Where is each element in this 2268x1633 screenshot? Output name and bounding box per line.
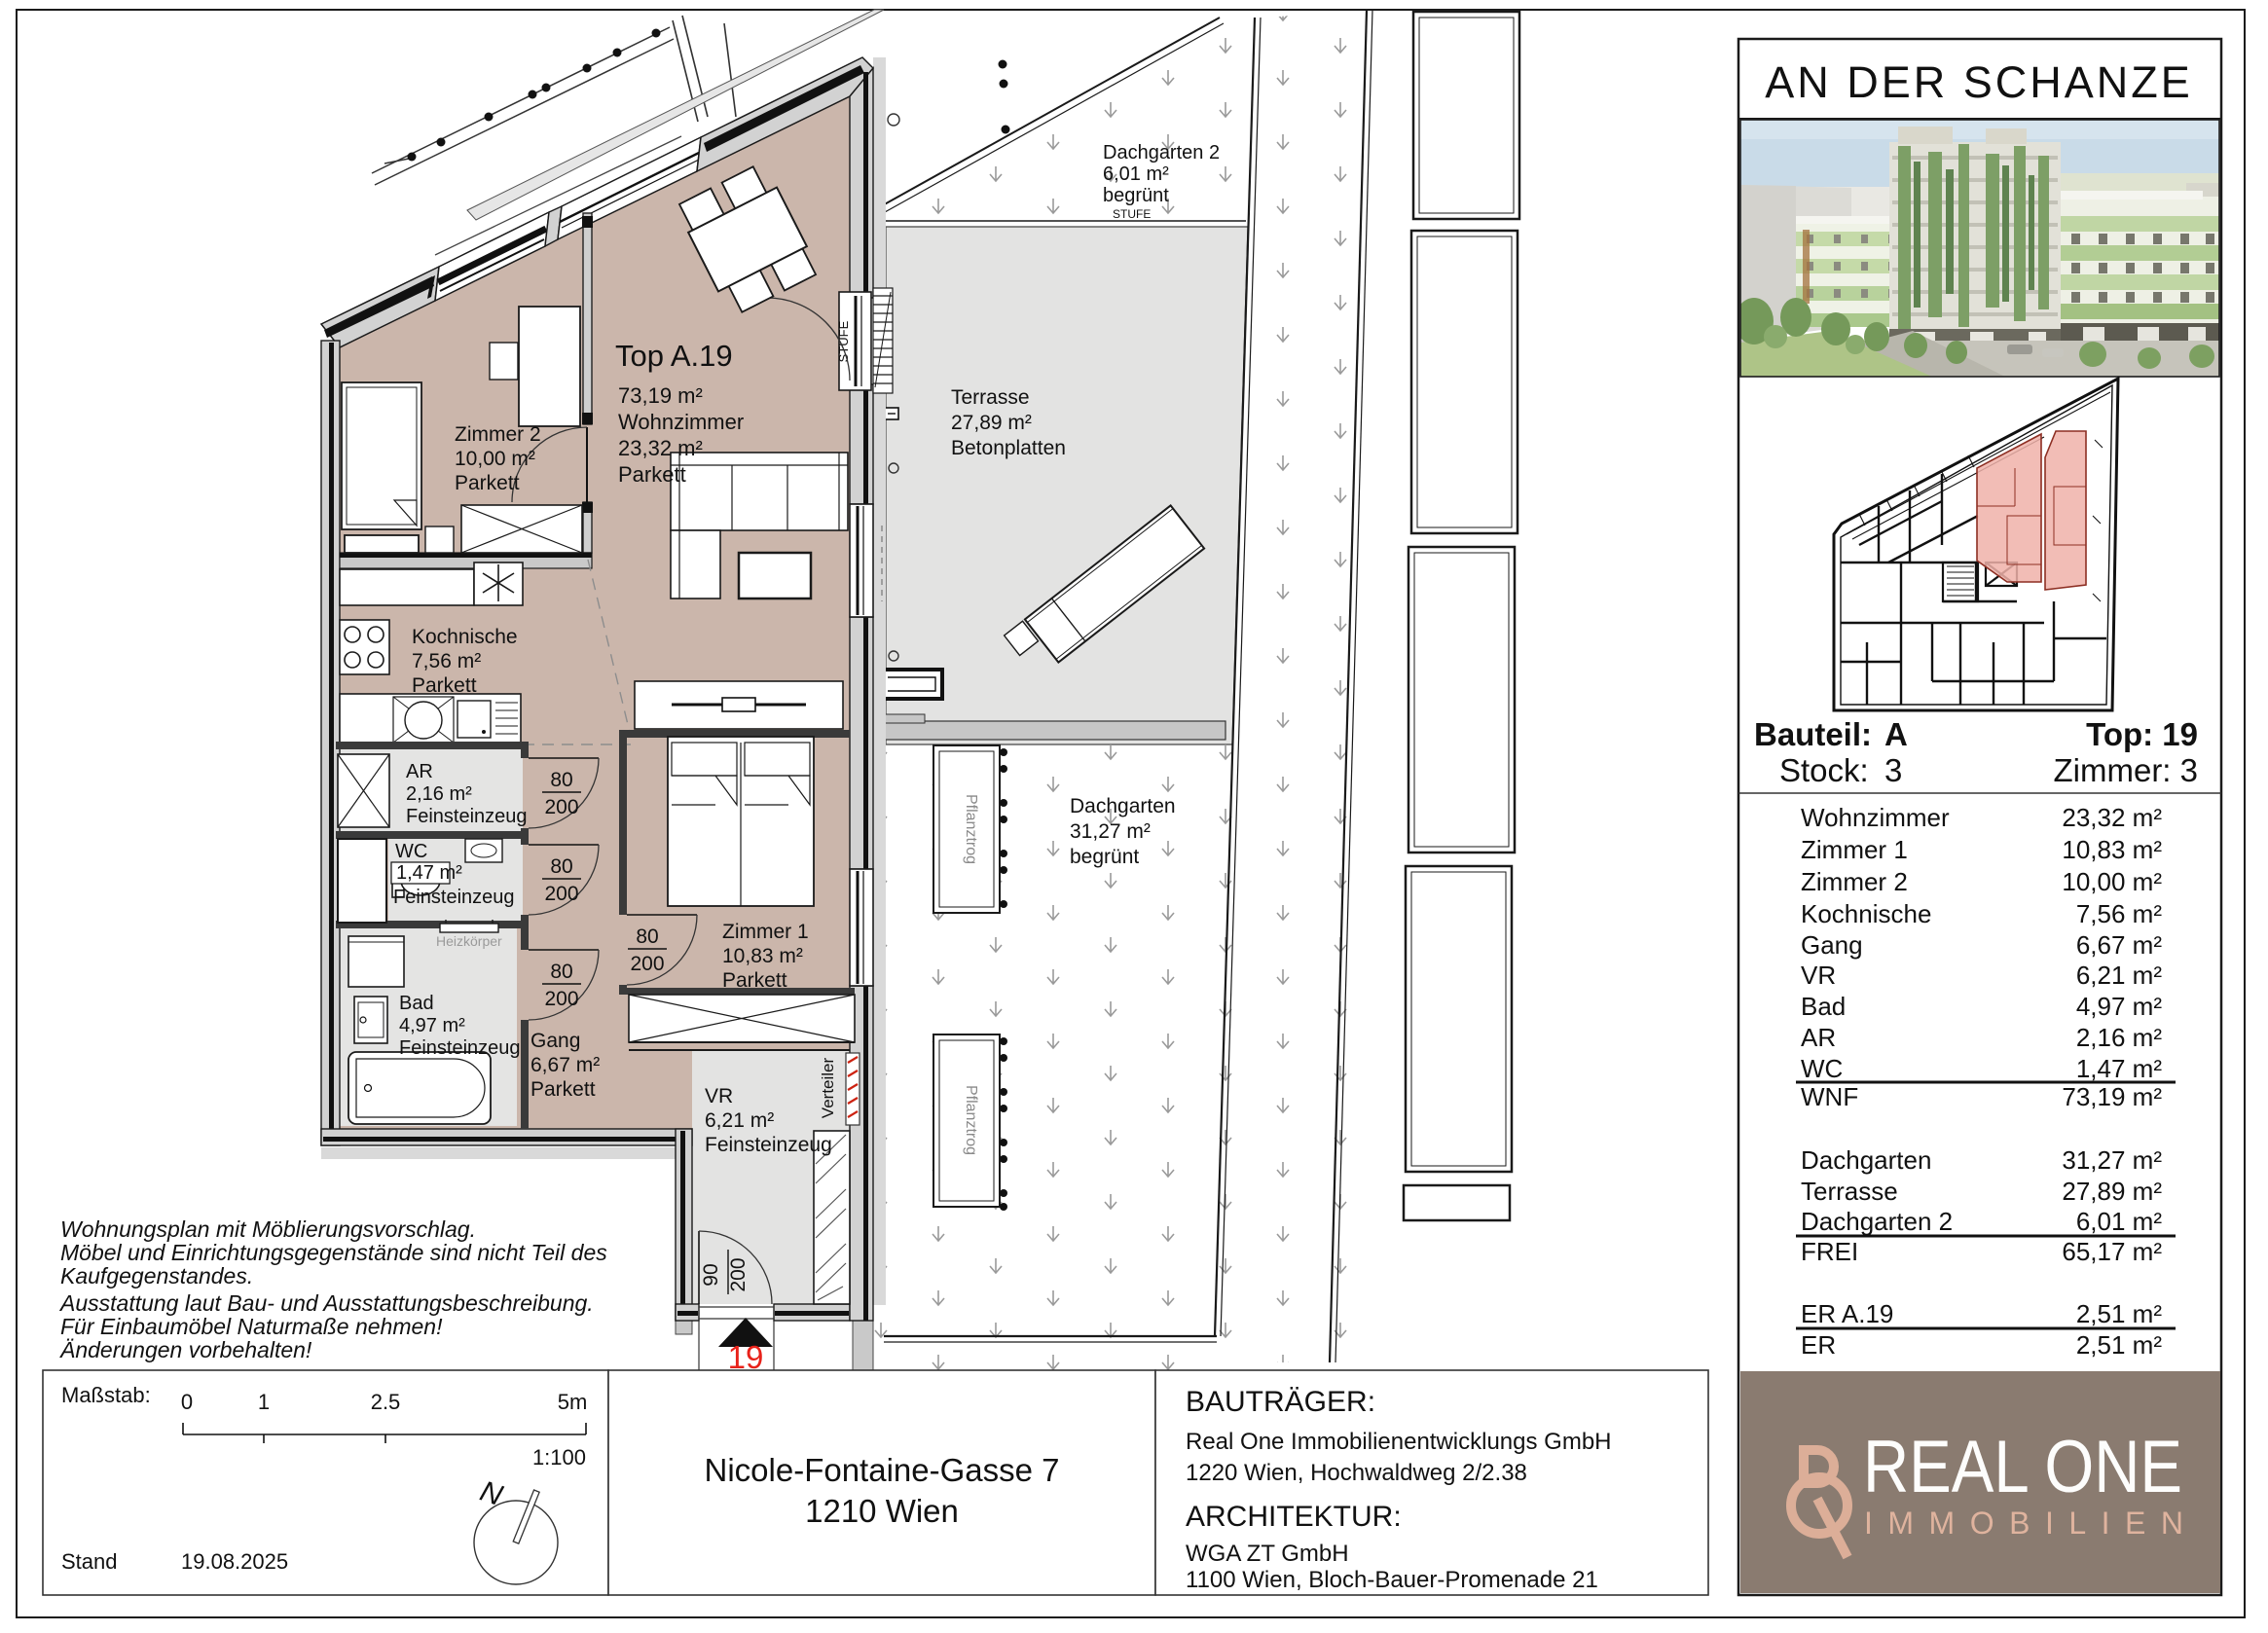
svg-text:WC: WC [395,841,427,862]
svg-text:5m: 5m [558,1390,588,1414]
svg-text:Kochnische: Kochnische [412,626,518,648]
svg-text:200: 200 [544,988,578,1010]
svg-text:Bauteil:: Bauteil: [1754,716,1872,752]
svg-text:1: 1 [258,1390,270,1414]
svg-text:Gang: Gang [530,1030,580,1052]
svg-text:Wohnungsplan mit Möblierungsvo: Wohnungsplan mit Möblierungsvorschlag. [60,1216,476,1242]
svg-text:1220 Wien, Hochwaldweg 2/2.38: 1220 Wien, Hochwaldweg 2/2.38 [1186,1460,1527,1486]
svg-text:AR: AR [406,761,433,782]
svg-text:200: 200 [544,883,578,905]
svg-text:Maßstab:: Maßstab: [61,1383,151,1407]
svg-text:Parkett: Parkett [722,969,787,992]
svg-text:3: 3 [1884,752,1902,788]
svg-text:Wohnzimmer: Wohnzimmer [1801,803,1950,832]
svg-text:1,47 m²: 1,47 m² [2076,1054,2162,1083]
svg-text:27,89 m²: 27,89 m² [2062,1177,2162,1206]
svg-text:65,17 m²: 65,17 m² [2062,1237,2162,1266]
svg-text:19.08.2025: 19.08.2025 [181,1549,288,1574]
svg-text:REAL ONE: REAL ONE [1863,1426,2182,1508]
svg-text:FREI: FREI [1801,1237,1858,1266]
svg-text:Top A.19: Top A.19 [615,339,733,373]
svg-text:6,67 m²: 6,67 m² [2076,930,2162,960]
svg-text:Zimmer 2: Zimmer 2 [455,423,541,446]
svg-text:31,27 m²: 31,27 m² [2062,1145,2162,1175]
svg-text:VR: VR [705,1085,733,1107]
svg-text:31,27 m²: 31,27 m² [1070,820,1151,843]
svg-text:Zimmer: 3: Zimmer: 3 [2054,752,2199,788]
svg-text:2.5: 2.5 [371,1390,401,1414]
svg-text:Stand: Stand [61,1549,118,1574]
svg-text:1:100: 1:100 [532,1445,586,1470]
svg-text:10,83 m²: 10,83 m² [722,945,803,967]
svg-text:Kochnische: Kochnische [1801,899,1931,928]
svg-text:Dachgarten 2: Dachgarten 2 [1103,142,1220,163]
svg-text:Bad: Bad [399,993,434,1014]
svg-text:73,19 m²: 73,19 m² [618,383,703,408]
svg-text:Bad: Bad [1801,992,1846,1021]
svg-text:IMMOBILIEN: IMMOBILIEN [1864,1506,2198,1541]
svg-text:A: A [1884,716,1908,752]
svg-text:begrünt: begrünt [1070,846,1139,868]
svg-text:ER: ER [1801,1330,1836,1360]
svg-text:WGA ZT GmbH: WGA ZT GmbH [1186,1541,1349,1567]
svg-text:10,00 m²: 10,00 m² [455,448,535,470]
svg-text:0: 0 [181,1390,193,1414]
svg-text:Parkett: Parkett [412,674,477,697]
svg-text:Kaufgegenstandes.: Kaufgegenstandes. [60,1263,253,1288]
svg-text:Wohnzimmer: Wohnzimmer [618,410,744,434]
svg-text:ARCHITEKTUR:: ARCHITEKTUR: [1186,1501,1402,1533]
svg-text:2,16 m²: 2,16 m² [406,783,472,805]
svg-text:Parkett: Parkett [455,472,520,494]
svg-text:Für Einbaumöbel Naturmaße nehm: Für Einbaumöbel Naturmaße nehmen! [60,1314,443,1339]
svg-text:ER A.19: ER A.19 [1801,1299,1893,1328]
svg-text:23,32 m²: 23,32 m² [618,436,703,460]
svg-text:Dachgarten: Dachgarten [1801,1145,1931,1175]
svg-text:4,97 m²: 4,97 m² [2076,992,2162,1021]
svg-text:Dachgarten 2: Dachgarten 2 [1801,1207,1953,1236]
svg-text:2,51 m²: 2,51 m² [2076,1330,2162,1360]
svg-text:Heizkörper: Heizkörper [436,933,502,949]
svg-text:VR: VR [1801,961,1836,990]
svg-text:WNF: WNF [1801,1082,1858,1111]
svg-text:Pflanztrog: Pflanztrog [963,1085,979,1155]
svg-text:Ausstattung laut Bau- und Auss: Ausstattung laut Bau- und Ausstattungsbe… [58,1290,594,1316]
svg-text:AN DER SCHANZE: AN DER SCHANZE [1765,57,2193,107]
svg-text:Zimmer 1: Zimmer 1 [722,921,809,943]
svg-text:1,47 m²: 1,47 m² [396,862,462,884]
svg-text:Zimmer 2: Zimmer 2 [1801,867,1908,896]
svg-text:1210 Wien: 1210 Wien [805,1493,959,1529]
svg-text:Nicole-Fontaine-Gasse 7: Nicole-Fontaine-Gasse 7 [705,1452,1060,1488]
svg-text:1100 Wien, Bloch-Bauer-Promena: 1100 Wien, Bloch-Bauer-Promenade 21 [1186,1567,1598,1593]
svg-text:6,01 m²: 6,01 m² [2076,1207,2162,1236]
svg-text:7,56 m²: 7,56 m² [2076,899,2162,928]
svg-text:27,89 m²: 27,89 m² [951,412,1032,434]
svg-text:Stock:: Stock: [1779,752,1869,788]
svg-text:Pflanztrog: Pflanztrog [963,794,979,864]
svg-text:Änderungen vorbehalten!: Änderungen vorbehalten! [59,1337,312,1362]
svg-text:Betonplatten: Betonplatten [951,437,1066,459]
svg-text:BAUTRÄGER:: BAUTRÄGER: [1186,1386,1375,1418]
svg-text:Gang: Gang [1801,930,1863,960]
svg-text:90: 90 [700,1263,722,1286]
svg-text:6,21 m²: 6,21 m² [2076,961,2162,990]
svg-text:Zimmer 1: Zimmer 1 [1801,835,1908,864]
svg-text:Parkett: Parkett [618,462,686,487]
svg-text:200: 200 [544,796,578,818]
svg-text:Feinsteinzeug: Feinsteinzeug [705,1134,832,1156]
svg-text:4,97 m²: 4,97 m² [399,1015,465,1036]
svg-text:73,19 m²: 73,19 m² [2062,1082,2162,1111]
svg-text:Verteiler: Verteiler [819,1057,837,1118]
svg-text:6,01 m²: 6,01 m² [1103,163,1169,185]
svg-text:Real One Immobilienentwicklung: Real One Immobilienentwicklungs GmbH [1186,1429,1612,1455]
svg-text:2,51 m²: 2,51 m² [2076,1299,2162,1328]
svg-text:Feinsteinzeug: Feinsteinzeug [399,1037,521,1059]
svg-text:Top: 19: Top: 19 [2086,716,2198,752]
svg-text:80: 80 [550,855,572,878]
svg-text:10,83 m²: 10,83 m² [2062,835,2162,864]
svg-text:Parkett: Parkett [530,1078,596,1101]
svg-text:WC: WC [1801,1054,1843,1083]
svg-text:Dachgarten: Dachgarten [1070,795,1176,817]
svg-text:6,21 m²: 6,21 m² [705,1109,774,1132]
svg-text:Terrasse: Terrasse [951,386,1030,409]
svg-text:Feinsteinzeug: Feinsteinzeug [406,806,528,827]
svg-text:23,32 m²: 23,32 m² [2062,803,2162,832]
svg-text:AR: AR [1801,1023,1836,1052]
svg-text:Feinsteinzeug: Feinsteinzeug [393,887,515,908]
svg-text:80: 80 [550,769,572,791]
svg-text:80: 80 [550,961,572,983]
svg-text:200: 200 [727,1257,750,1291]
svg-text:80: 80 [636,925,658,948]
svg-text:7,56 m²: 7,56 m² [412,650,481,672]
svg-text:2,16 m²: 2,16 m² [2076,1023,2162,1052]
svg-text:begrünt: begrünt [1103,185,1169,206]
svg-text:Möbel und Einrichtungsgegenstä: Möbel und Einrichtungsgegenstände sind n… [60,1240,607,1265]
svg-text:200: 200 [630,953,664,975]
svg-text:STUFE: STUFE [1113,207,1151,221]
svg-text:Terrasse: Terrasse [1801,1177,1898,1206]
svg-text:STUFE: STUFE [836,320,851,362]
svg-text:10,00 m²: 10,00 m² [2062,867,2162,896]
svg-text:6,67 m²: 6,67 m² [530,1054,600,1076]
